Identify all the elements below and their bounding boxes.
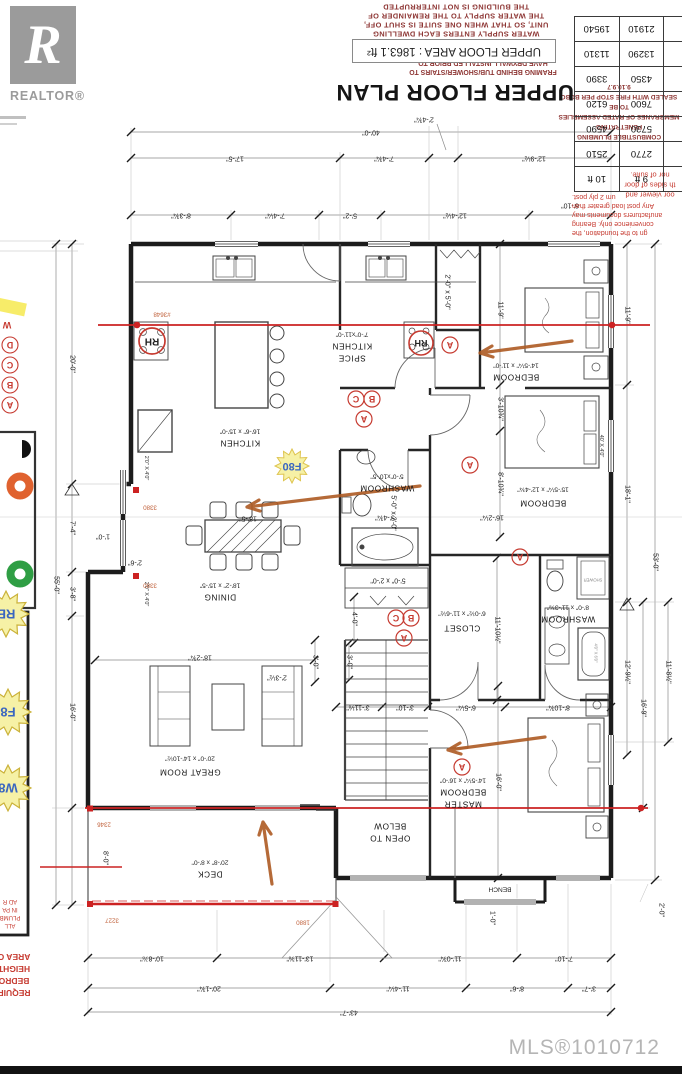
red-reference-numbers: #3648 3380 3380 2346 3227 1880 [97, 311, 310, 926]
rh-stamp-kitchen: RH [139, 328, 165, 354]
staircase [345, 640, 428, 800]
mls-watermark: MLS®1010712 [509, 1036, 660, 1060]
dim-interior: 18'-2¾" [188, 654, 212, 661]
ref-number: 3380 [143, 504, 157, 511]
dim-interior: 8'-10¾" [497, 472, 504, 496]
ref-number: #3648 [153, 311, 171, 318]
dim-top: 12'-9½" [522, 155, 546, 163]
cell: 4590 [575, 117, 620, 142]
cell: 4350 [619, 67, 664, 92]
dim-interior: 3'-0" [312, 655, 319, 669]
cell: 5730 [619, 117, 664, 142]
table-row: 2191019540 [575, 17, 682, 42]
ref-number: 1880 [296, 919, 310, 926]
letter-a: A [400, 633, 407, 643]
letter-a: A [6, 400, 13, 410]
note-frag: IN PA [2, 906, 17, 912]
rh-stamp-label: RH [415, 338, 428, 348]
note-frag: AD R [2, 898, 17, 904]
table-row: 27702510 [575, 142, 682, 167]
letter-b: B [368, 394, 375, 404]
cell: 10 ft [575, 167, 620, 192]
dim-leader: 2'-4¾" [414, 116, 434, 123]
dim-right: 16'-9" [640, 699, 647, 717]
letter-a: A [360, 414, 367, 424]
note-frag: BEDRO [0, 976, 29, 986]
table-row: 76006120 [575, 92, 682, 117]
closet-label: CLOSET [444, 624, 480, 633]
beam-stamp: RB [0, 607, 15, 622]
dim-closet: 5'-0" x 2'-0" [390, 495, 397, 531]
dim-top: 8'-3¾" [171, 212, 191, 219]
left-note-fragment-1: ALL PLUMB IN PA AD R [0, 898, 20, 928]
cell: 21910 [619, 17, 664, 42]
letter-c: C [352, 394, 359, 404]
dining-label: DINING [204, 593, 236, 602]
note-frag: anufacturers documents may [572, 210, 682, 219]
ref-number: 2346 [97, 821, 111, 828]
bedroom1-dims: 14'-5¼" x 11'-0" [493, 362, 539, 369]
closet-dims: 6'-0½" x 11'-6½" [438, 610, 486, 618]
dim-bottom: 11'-4¼" [386, 985, 410, 992]
post-load-table: 9 ft10 ft 27702510 57304590 76006120 435… [574, 16, 682, 192]
dim-right: 18'-1" [624, 485, 631, 503]
great-room-dims: 20'-0" x 14'-10½" [164, 755, 214, 763]
dim-top: 5'-2" [343, 212, 357, 219]
letter-b: B [407, 613, 414, 623]
great-room-label: GREAT ROOM [159, 768, 220, 777]
cell: 13290 [619, 42, 664, 67]
dim-closet: 2'-0" x 5'-0" [444, 274, 451, 310]
letter-b: B [6, 380, 13, 390]
dim-left: 7'-4" [69, 521, 76, 535]
letter-fragment: W [2, 320, 11, 330]
dim-interior: 16'-2¼" [480, 514, 504, 521]
letter-a: A [458, 762, 465, 772]
dim-overall-depth: 43'-7" [340, 1009, 358, 1016]
pie-symbol [22, 440, 31, 458]
deck-label: DECK [197, 870, 222, 879]
dim-bottom: 3'-7" [582, 985, 596, 992]
dim-top: 7'-4¾" [374, 155, 394, 162]
table-row: 57304590 [575, 117, 682, 142]
washroom-right-label: WASHROOM [541, 615, 596, 624]
dim-interior: 8'-10¾" [546, 704, 570, 711]
f80-stamp: F80 [275, 449, 309, 483]
spice-kitchen-dims: 7'-0"x11'-0" [335, 331, 368, 338]
dim-interior: 2'-3½" [267, 674, 287, 682]
note-line: UNIT, SO THAT WHEN ONE SUITE IS SHUT OFF… [343, 20, 569, 29]
note-line: FRAMING BEHIND TUB/SHOWER/STAIRS TO [397, 66, 569, 75]
dim-interior: 11'-10½" [494, 616, 502, 644]
dim-bottom: 7'-10" [555, 955, 573, 962]
dim-right: 2'-0" [658, 903, 665, 917]
cell: 19540 [575, 17, 620, 42]
table-row: 9 ft10 ft [575, 167, 682, 192]
divider [0, 116, 26, 119]
tub-label: 4'0" X 6'0" [594, 643, 599, 663]
bedroom2-dims: 15'-5¼" x 12'-4¾" [517, 486, 569, 493]
window-label: 2'0" X 4'0" [143, 456, 149, 481]
dim-left: 8'-0" [102, 851, 109, 865]
dining-furniture [186, 502, 300, 570]
dim-interior: 3'-10¾" [497, 397, 504, 421]
cell: 7600 [619, 92, 664, 117]
realtor-r-glyph: R [24, 17, 61, 73]
cell: 3390 [575, 67, 620, 92]
note-frag: PLUMB [0, 914, 20, 920]
dim-left: 3'-8" [69, 587, 76, 601]
letter-c: C [6, 360, 13, 370]
letter-a: A [466, 460, 473, 470]
note-frag: HEIGHT [0, 964, 30, 974]
washroom-mid-label: WASHROOM [360, 484, 415, 493]
dim-interior: 3'-11⅛" [346, 704, 370, 711]
dining-dims: 18'-2" x 15'-5" [199, 582, 240, 589]
bedroom1-label: BEDROOM [493, 373, 540, 382]
dim-right: 12'-9½" [624, 660, 632, 684]
dim-top: 12'-4½" [443, 212, 467, 220]
spice-kitchen-label: SPICE [338, 354, 366, 363]
kitchen-label: KITCHEN [220, 439, 260, 448]
note-line: WATER SUPPLY ENTERS EACH DWELLING [343, 29, 569, 38]
deck-outline [88, 808, 336, 904]
dimension-ticks [52, 128, 672, 1016]
letter-a: A [446, 340, 453, 350]
realtor-logo-icon: R [10, 6, 76, 84]
washroom-mid-dims: 5'-0"x10'-5" [370, 473, 404, 480]
dim-closet: 5'-0" x 2'-0" [370, 577, 406, 584]
letter-a: A [516, 552, 523, 562]
note-frag: Any post load greater than [572, 201, 682, 210]
dim-bottom: 20'-1¾" [197, 985, 221, 992]
note-frag: um 2 ply post. [572, 192, 682, 201]
dim-interior: 3'-0" [346, 655, 353, 669]
beam-stamp: W8 [0, 781, 18, 796]
dim-bottom: 8'-6" [510, 985, 524, 992]
left-note-fragment-2: REQUIR BEDRO HEIGHT AREA O [0, 952, 31, 998]
dim-left: 20'-0" [69, 355, 76, 373]
f80-stamp-label: F80 [283, 460, 302, 472]
cell: 6120 [575, 92, 620, 117]
note-frag: REQUIR [0, 988, 31, 998]
dim-right-overall: 53'-0" [652, 553, 659, 571]
note-frag: convenience only. Bearing [572, 219, 682, 228]
dim-top: 17'-5" [226, 155, 244, 162]
note-frag: ALL [4, 922, 15, 928]
dim-interior: 1'-0" [489, 911, 496, 925]
floor-plan-sheet: RH RH F80 C B A C B A A A A A 1 [0, 0, 682, 1074]
cell: 2510 [575, 142, 620, 167]
deck-dims: 20'-8" x 8'-0" [191, 859, 229, 866]
green-ring-symbol [11, 565, 30, 584]
cell: 9 ft [619, 167, 664, 192]
note-line: THE WATER SUPPLY TO THE REMAINDER OF [343, 11, 569, 20]
bedroom2-label: BEDROOM [520, 499, 567, 508]
post-load-table-block: gn to the foundation, the convenience on… [572, 16, 682, 240]
open-below-label: BELOW [374, 822, 407, 831]
page-title: UPPER FLOOR PLAN [328, 79, 582, 105]
dim-top: 7'-4¼" [265, 212, 285, 219]
table-row: 43503390 [575, 67, 682, 92]
kitchen-dims: 16'-6" x 15'-0" [219, 428, 260, 435]
dim-overall-width: 40'-0" [362, 129, 380, 136]
dim-interior: 6'-5¼" [456, 704, 476, 711]
dim-left-overall: 55'-0" [53, 576, 60, 594]
realtor-logo-text: REALTOR® [10, 89, 90, 103]
dim-right: 11'-8½" [665, 660, 673, 684]
post-table-notes: gn to the foundation, the convenience on… [572, 192, 682, 237]
ref-number: 3227 [105, 917, 119, 924]
floor-area-text: UPPER FLOOR AREA : 1863.1 ft² [367, 45, 541, 57]
note-frag: AREA O [0, 952, 30, 962]
master-label: BEDROOM [440, 788, 487, 797]
dim-interior: 2'-6" [128, 559, 142, 566]
bottom-bar [0, 1066, 682, 1074]
divider [0, 123, 17, 125]
spice-kitchen-label: KITCHEN [332, 342, 372, 351]
highlighter-mark [0, 297, 27, 317]
shower-label: SHOWER [584, 578, 603, 583]
dim-bottom: 13'-11⅜" [286, 955, 314, 962]
dim-left: 16'-0" [69, 703, 76, 721]
cell: 11310 [575, 42, 620, 67]
window-label: 40' X 4'0" [598, 435, 604, 458]
rh-stamp-spice: RH [409, 331, 433, 355]
floor-area-box: UPPER FLOOR AREA : 1863.1 ft² [352, 39, 556, 63]
dim-interior: 11'-9" [497, 301, 504, 319]
orange-markup-arrows [247, 341, 572, 884]
realtor-logo: R REALTOR® [10, 6, 90, 103]
dim-right: 11'-9" [624, 306, 631, 324]
dim-interior: 4'-0" [351, 612, 358, 626]
master-label: MASTER [444, 800, 482, 809]
rh-stamp-label: RH [145, 336, 159, 347]
dim-bottom: 11'-0¾" [438, 955, 462, 962]
dim-interior: 16'-0" [495, 773, 502, 791]
cell: 2770 [619, 142, 664, 167]
table-row: 1329011310 [575, 42, 682, 67]
letter-c: C [392, 613, 399, 623]
note-line: THE BUILDING IS NOT INTERRUPTED [343, 2, 569, 11]
master-dims: 14'-5¼" x 16'-0" [439, 777, 486, 784]
left-legend-strip: W D C B A RB F8 W8 ALL PLUMB IN PA AD R [0, 297, 35, 998]
letter-d: D [6, 340, 13, 350]
washroom-right-dims: 8'-0" x 11'-3⅜" [546, 604, 589, 611]
dim-bottom: 10'-8⅞" [140, 955, 164, 962]
dim-interior: 18'-5" [239, 515, 257, 522]
beam-stamp: F8 [0, 705, 15, 720]
note-frag: gn to the foundation, the [572, 228, 682, 237]
bench-label: BENCH [488, 886, 511, 893]
open-below-label: OPEN TO [370, 834, 411, 843]
ref-number: 3380 [143, 582, 157, 589]
dim-interior: 1'-0" [96, 533, 110, 540]
orange-ring-symbol [11, 477, 30, 496]
dim-interior: 3'-10" [396, 704, 414, 711]
